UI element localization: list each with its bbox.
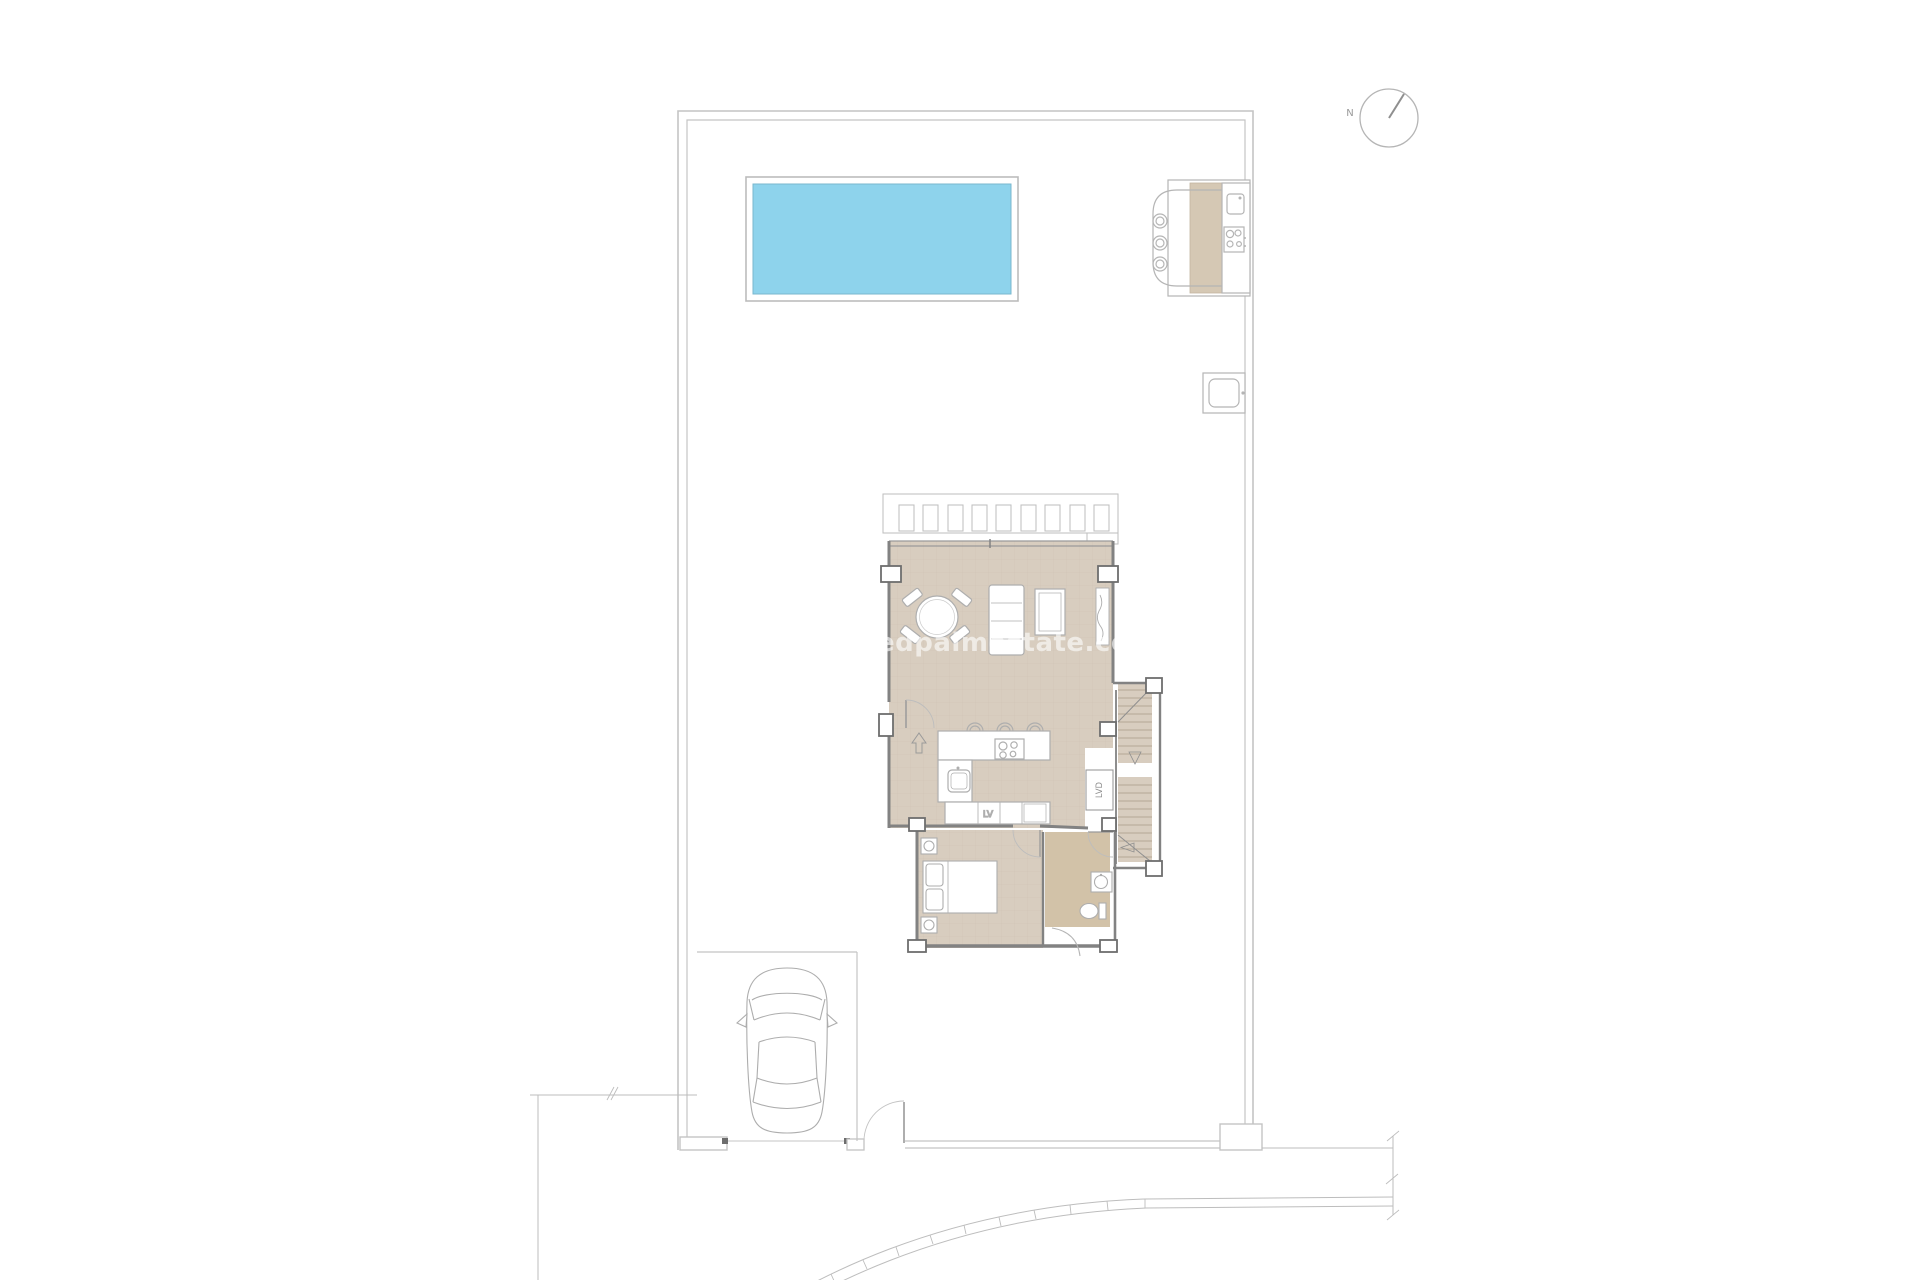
kitchen-sink-counter [938, 760, 972, 802]
north-compass: N [1346, 89, 1418, 147]
dishwasher-label: LV [983, 810, 994, 820]
washer-label: LVD [1095, 781, 1105, 798]
nightstand [921, 917, 937, 933]
laundry-closet: LVD [1086, 770, 1113, 810]
boundary-pillar [1220, 1124, 1262, 1150]
floor-plan-drawing: N [0, 0, 1920, 1280]
kitchen-counter: LV [945, 802, 1050, 824]
pool-water [753, 184, 1011, 294]
swimming-pool [746, 177, 1018, 301]
bed [923, 861, 997, 913]
bar-stools [1153, 214, 1167, 271]
toilet [1080, 903, 1106, 919]
north-label: N [1346, 108, 1353, 119]
gate-post [847, 1139, 864, 1150]
site-survey-lines [530, 1087, 1399, 1280]
outdoor-shower [1203, 373, 1245, 413]
road-curb [800, 1197, 1393, 1280]
pergola [883, 494, 1118, 544]
line-break-mark [607, 1087, 618, 1100]
gate-post [680, 1137, 727, 1150]
parking-space [697, 952, 857, 1141]
outdoor-counter-top [1190, 183, 1222, 293]
bathroom-sink [1091, 872, 1112, 892]
car-top-view [737, 968, 837, 1133]
pedestrian-gate [864, 1101, 904, 1143]
house: LVD [879, 494, 1162, 956]
floor-plan-page: N [0, 0, 1920, 1280]
kitchen-island [938, 731, 1050, 760]
stair-flight-upper-floor [1118, 683, 1152, 763]
nightstand [921, 838, 937, 854]
watermark-text: edpalmestate.com [877, 628, 1157, 658]
shower-screen [1052, 928, 1080, 956]
outdoor-kitchen [1153, 180, 1250, 296]
